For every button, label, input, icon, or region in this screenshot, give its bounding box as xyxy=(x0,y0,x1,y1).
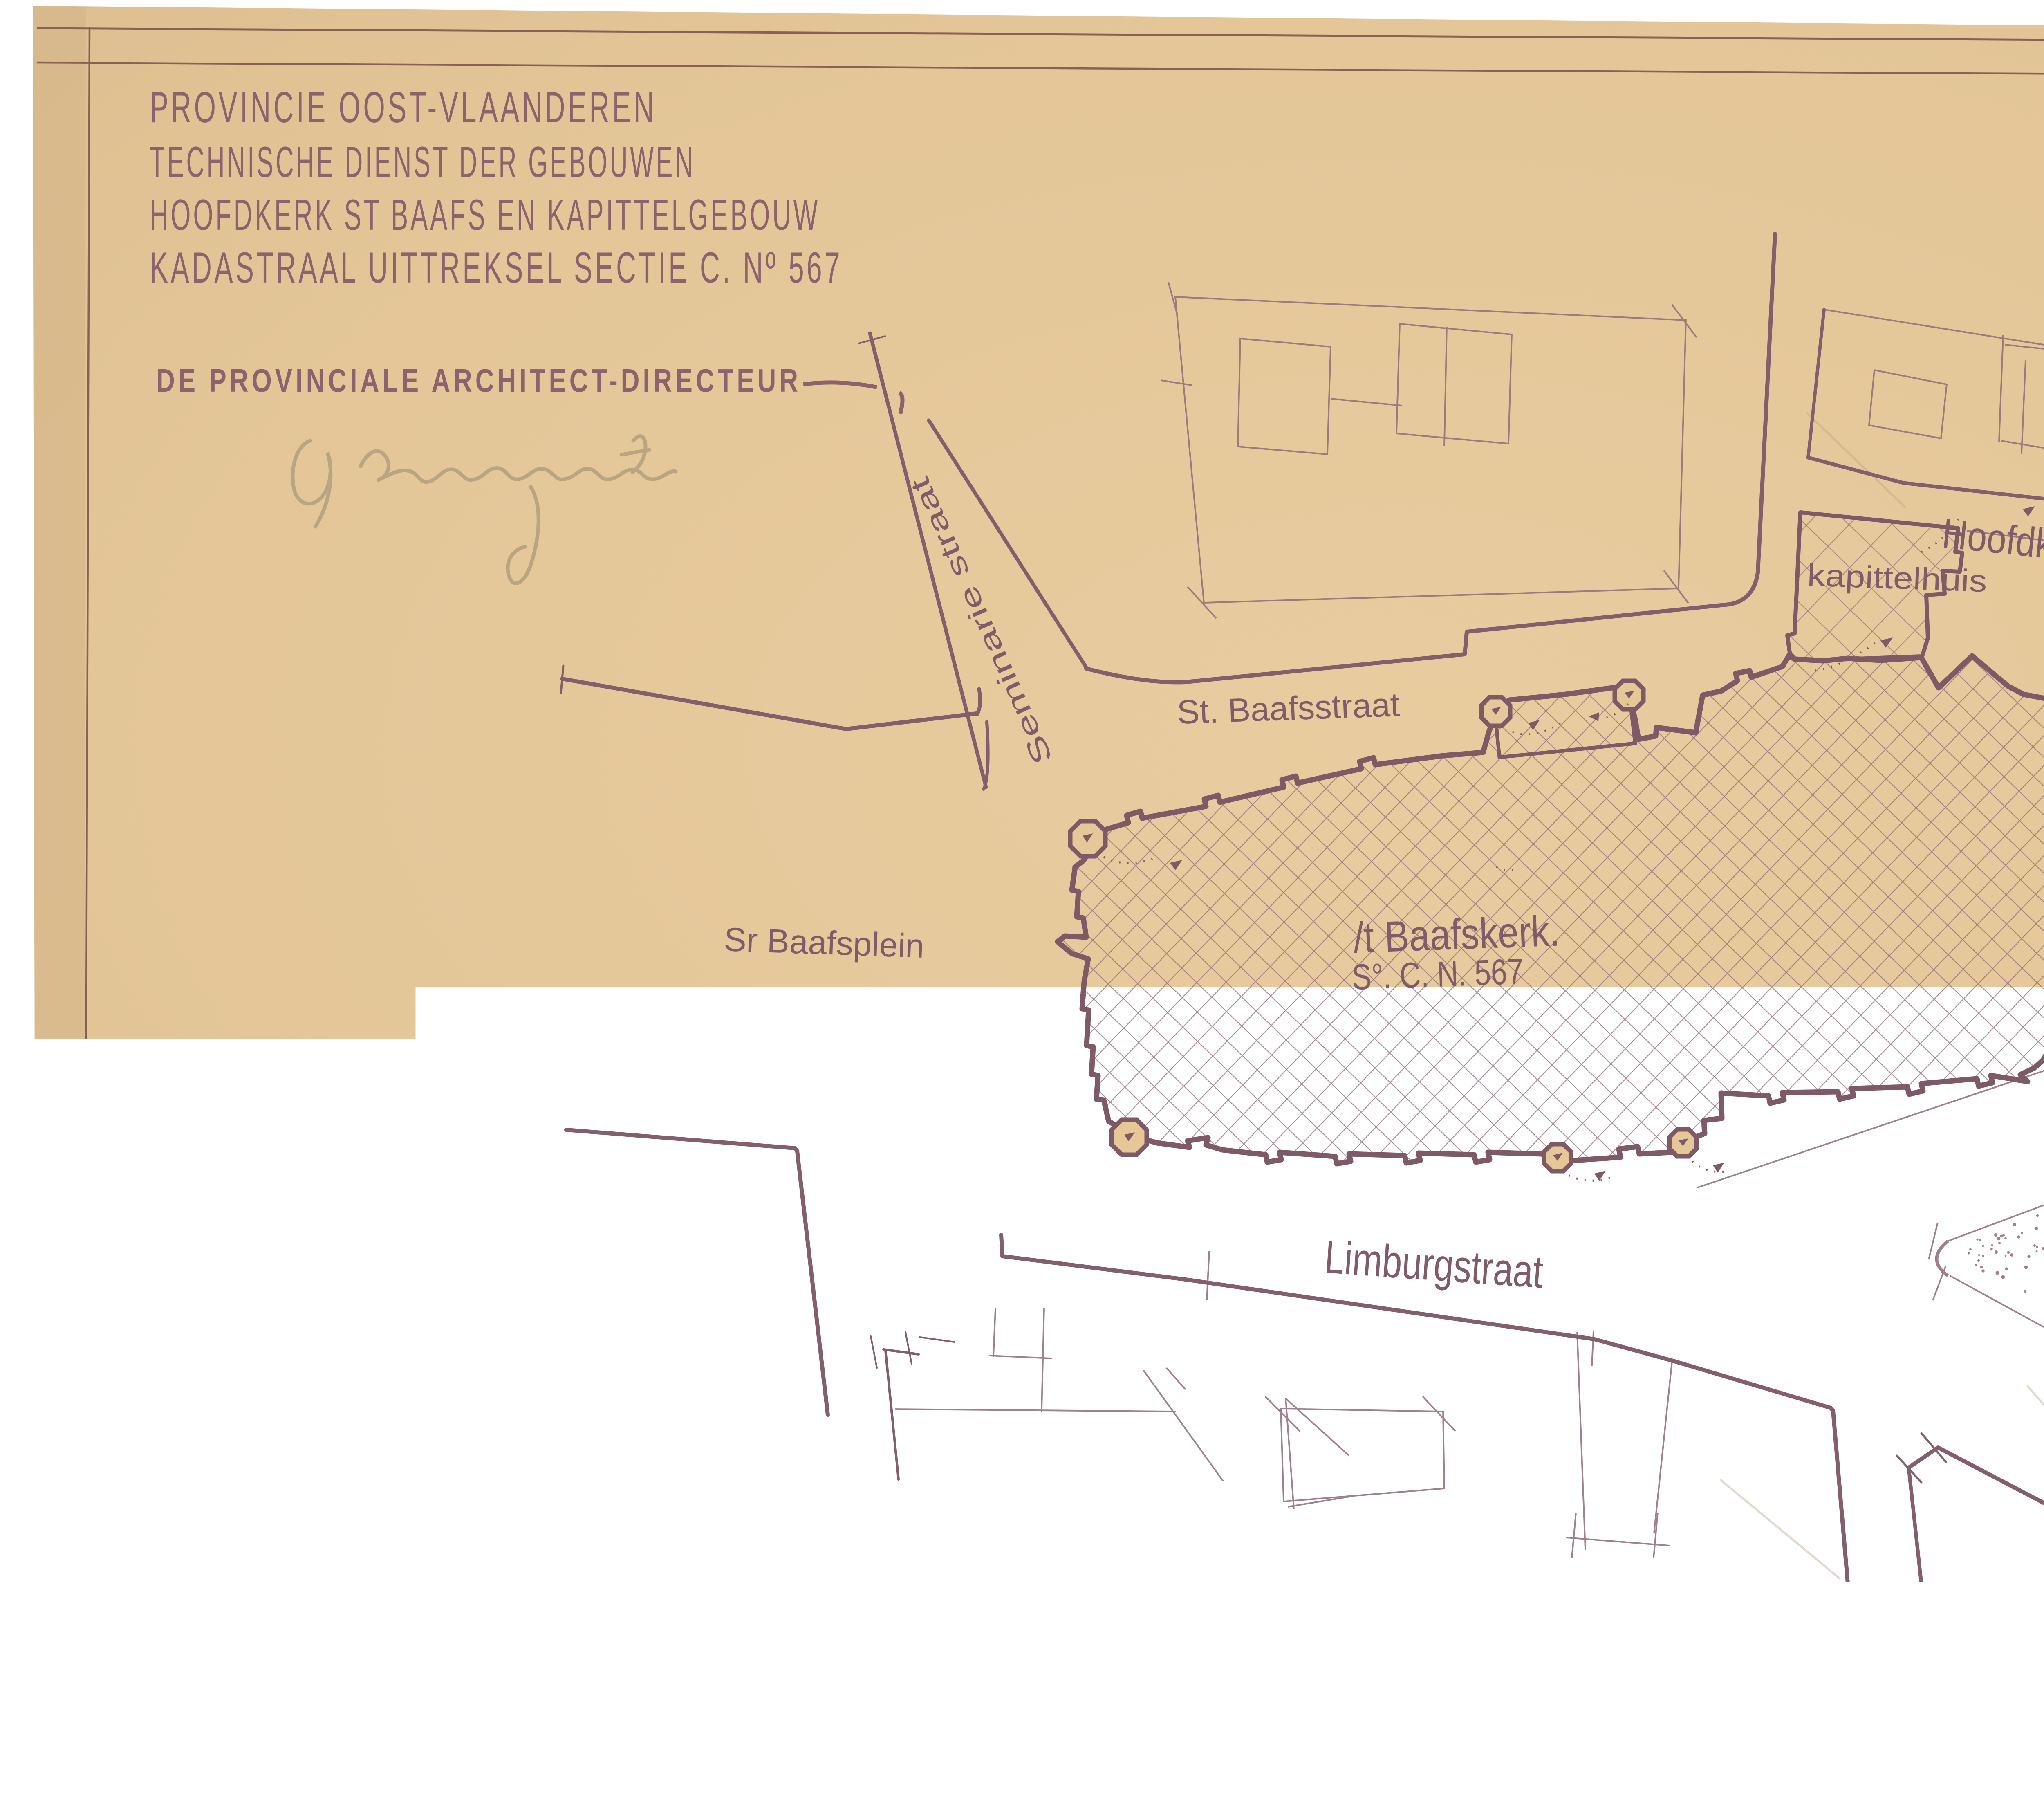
svg-text:HOOFDKERK ST BAAFS EN KAPIT: HOOFDKERK ST BAAFS EN KAPITTELGEBOUW xyxy=(150,190,820,239)
svg-text:Sr Baafsplein: Sr Baafsplein xyxy=(723,921,925,965)
svg-text:DE PROVINCIALE ARCHITECT-DIREC: DE PROVINCIALE ARCHITECT-DIRECTEUR xyxy=(156,362,801,399)
svg-text:St. Baafsstraat: St. Baafsstraat xyxy=(1176,686,1400,731)
svg-text:PROVINCIE OOST-VLAANDEREN: PROVINCIE OOST-VLAANDEREN xyxy=(150,83,657,132)
svg-text:TECHNISCHE DIENST DER GEBOUWEN: TECHNISCHE DIENST DER GEBOUWEN xyxy=(150,137,695,186)
svg-text:S°. C. N. 567: S°. C. N. 567 xyxy=(1351,951,1524,997)
svg-text:kapittelhuis: kapittelhuis xyxy=(1806,558,1988,599)
svg-text:KADASTRAAL UITTREKSEL SECTIE: KADASTRAAL UITTREKSEL SECTIE C. Nº 567 xyxy=(150,243,843,292)
